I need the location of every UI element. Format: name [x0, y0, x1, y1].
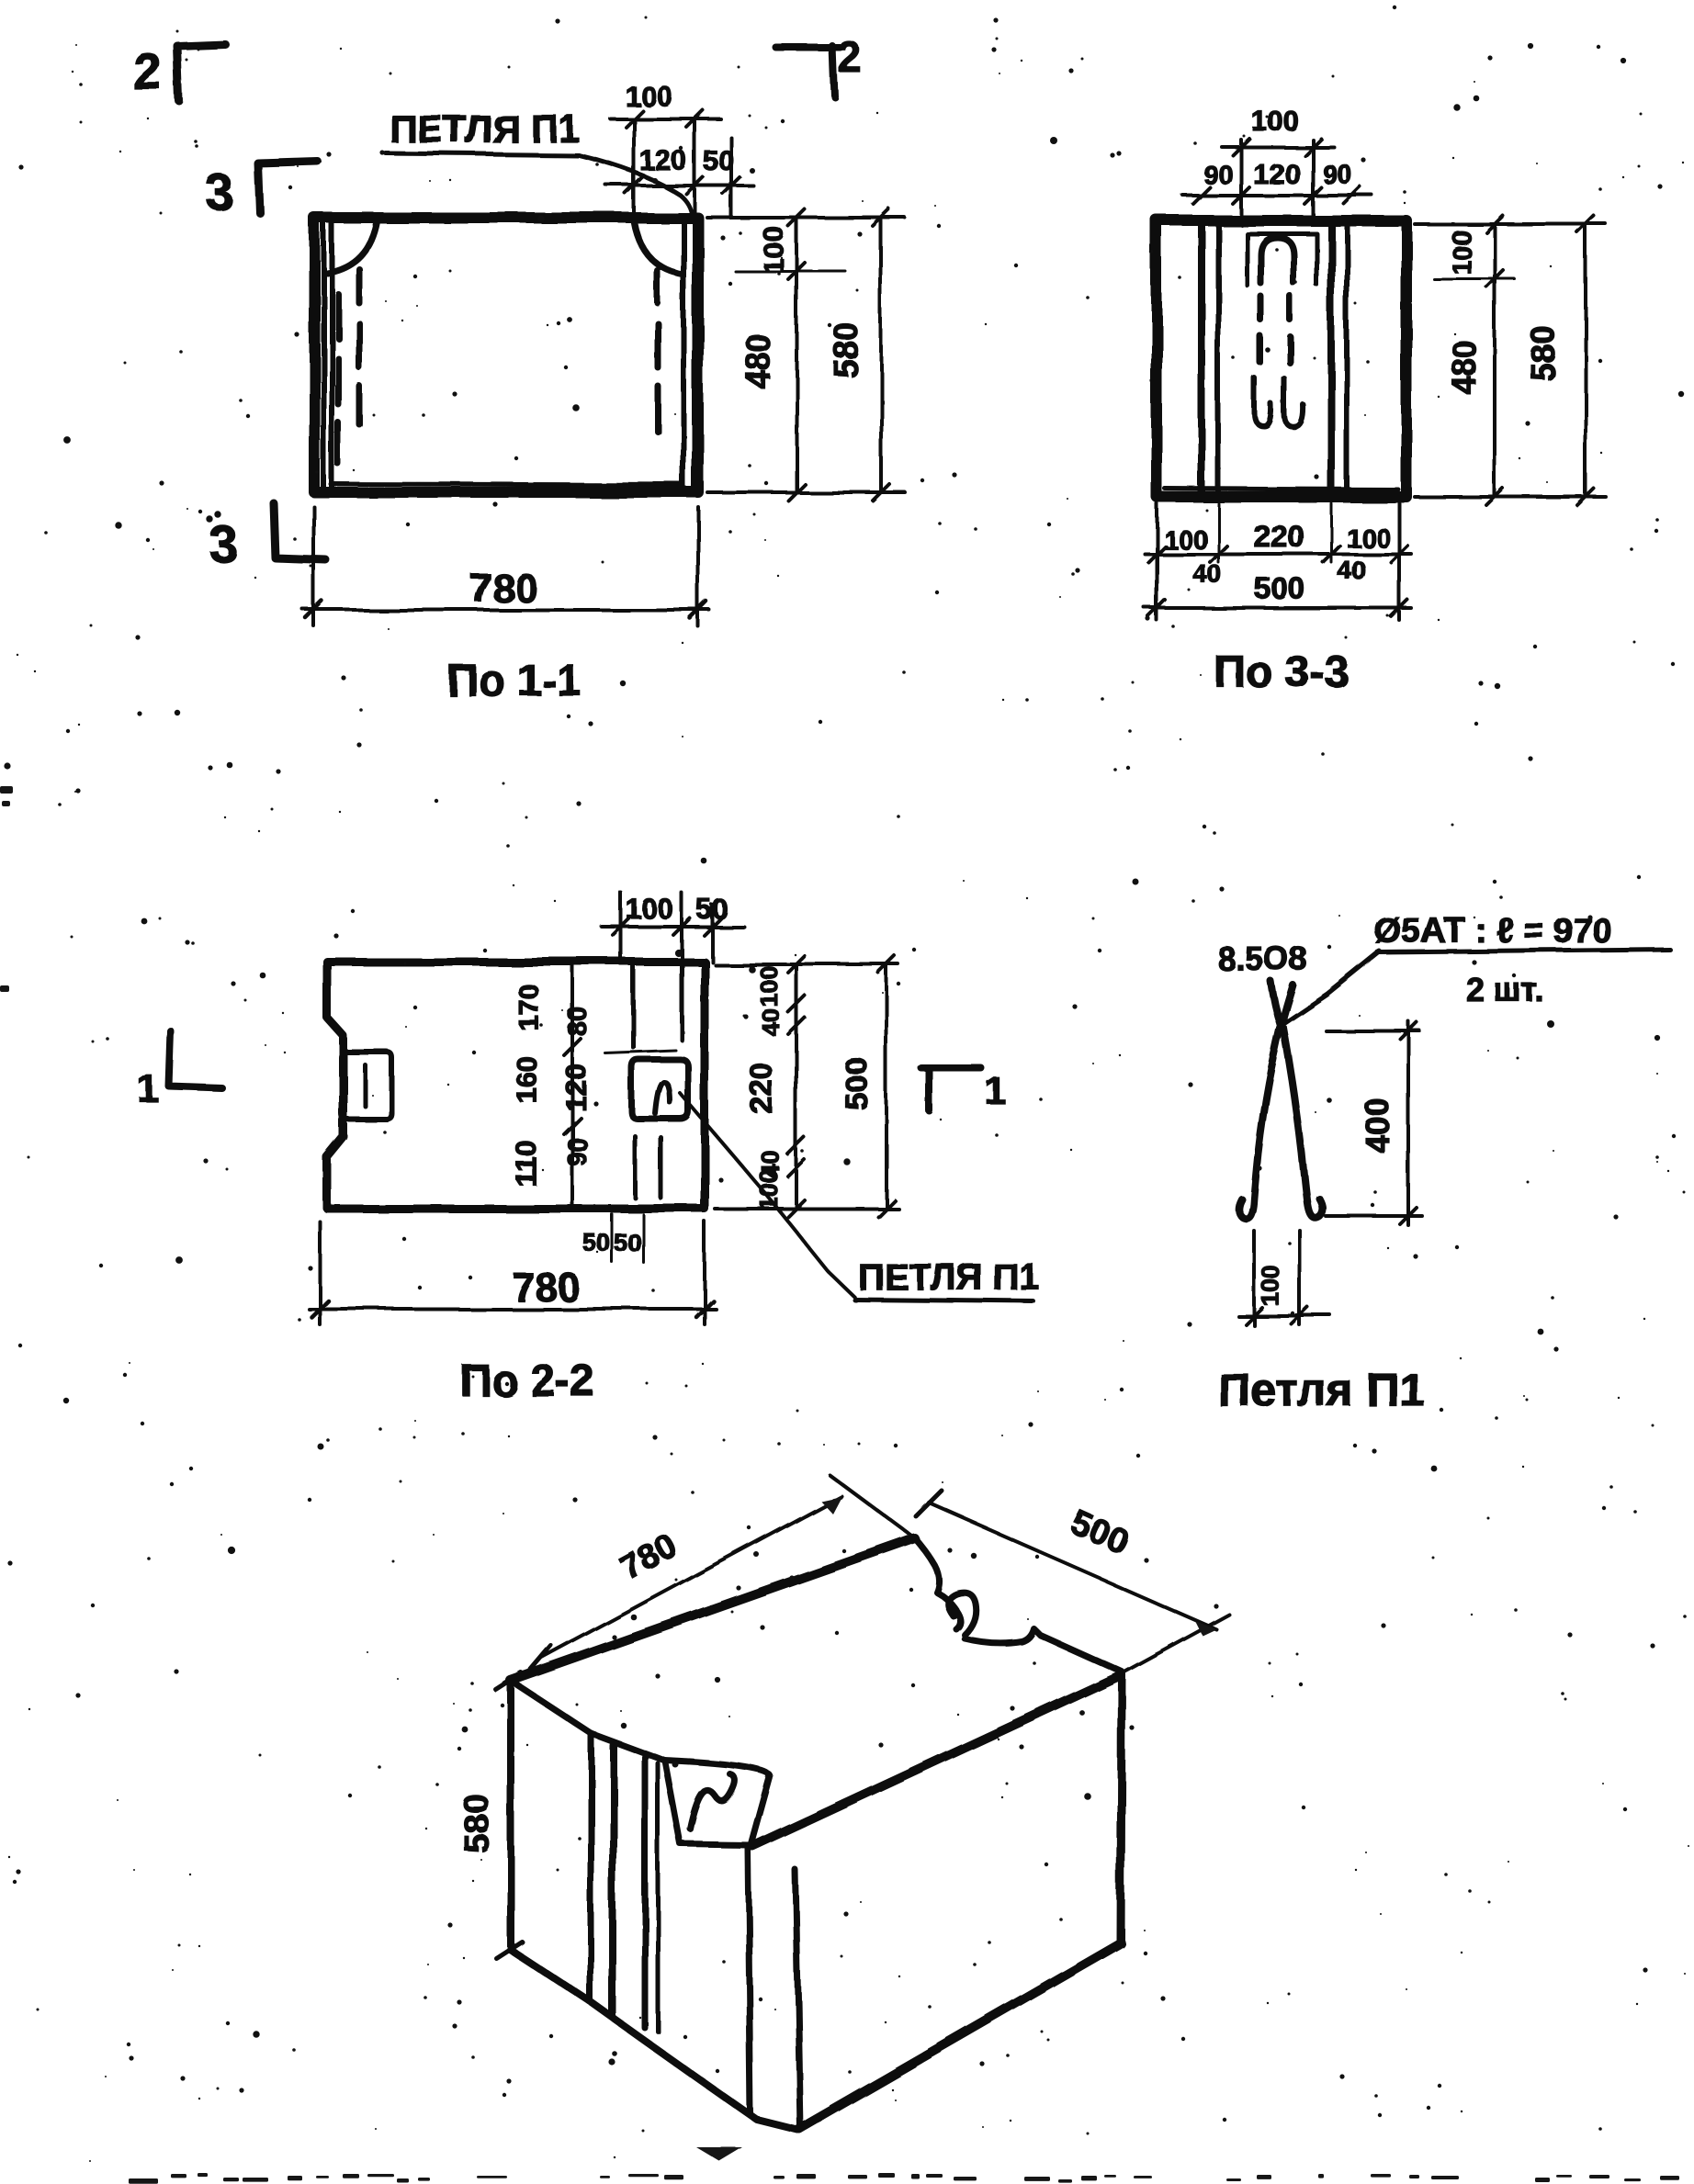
svg-text:500: 500 [840, 1058, 875, 1110]
svg-text:120: 120 [559, 1064, 592, 1111]
svg-text:90: 90 [1203, 161, 1233, 190]
svg-text:170: 170 [512, 983, 544, 1030]
svg-text:2 шт.: 2 шт. [1466, 971, 1544, 1008]
svg-text:ПЕТЛЯ П1: ПЕТЛЯ П1 [858, 1257, 1040, 1298]
svg-text:3: 3 [206, 165, 233, 220]
svg-text:780: 780 [469, 566, 536, 611]
svg-text:1: 1 [138, 1067, 159, 1110]
svg-text:2: 2 [133, 42, 162, 100]
svg-text:100: 100 [757, 226, 789, 274]
svg-text:480: 480 [740, 334, 777, 389]
svg-text:480: 480 [1446, 341, 1484, 396]
svg-text:ПЕТЛЯ П1: ПЕТЛЯ П1 [390, 107, 581, 151]
svg-text:220: 220 [1253, 519, 1304, 553]
svg-text:90: 90 [1323, 161, 1352, 190]
svg-text:100: 100 [1163, 525, 1207, 555]
svg-text:500: 500 [1254, 571, 1304, 605]
svg-text:40: 40 [1192, 559, 1221, 588]
svg-text:По 1-1: По 1-1 [446, 657, 582, 705]
svg-text:40: 40 [757, 1008, 785, 1036]
svg-text:780: 780 [512, 1265, 579, 1310]
svg-text:110: 110 [511, 1142, 543, 1188]
svg-text:580: 580 [827, 322, 864, 377]
svg-text:Петля П1: Петля П1 [1217, 1364, 1425, 1415]
svg-text:8.5О8: 8.5О8 [1217, 940, 1307, 977]
svg-text:80: 80 [563, 1007, 593, 1036]
svg-text:400: 400 [1359, 1098, 1396, 1154]
svg-text:40: 40 [1337, 556, 1365, 584]
svg-text:160: 160 [511, 1056, 543, 1104]
svg-text:220: 220 [744, 1063, 778, 1113]
svg-text:580: 580 [1524, 326, 1562, 381]
svg-text:Ø5АТ : ℓ = 970: Ø5АТ : ℓ = 970 [1374, 912, 1612, 951]
svg-text:580: 580 [457, 1794, 496, 1852]
svg-text:120: 120 [1253, 158, 1301, 190]
svg-text:100: 100 [755, 965, 783, 1007]
svg-text:50: 50 [614, 1229, 641, 1256]
svg-text:100: 100 [1447, 230, 1476, 274]
svg-text:По 3-3: По 3-3 [1214, 648, 1350, 697]
svg-text:100: 100 [625, 80, 672, 112]
svg-text:100: 100 [755, 1169, 783, 1210]
svg-text:90: 90 [563, 1137, 593, 1166]
svg-text:1: 1 [985, 1069, 1006, 1112]
svg-text:100: 100 [1346, 523, 1390, 553]
svg-text:По 2-2: По 2-2 [460, 1357, 595, 1406]
svg-text:50: 50 [696, 893, 728, 925]
svg-text:100: 100 [626, 893, 673, 925]
svg-text:100: 100 [1251, 105, 1299, 137]
svg-text:100: 100 [1257, 1265, 1284, 1306]
svg-text:2: 2 [838, 33, 862, 81]
svg-text:3: 3 [209, 515, 238, 573]
